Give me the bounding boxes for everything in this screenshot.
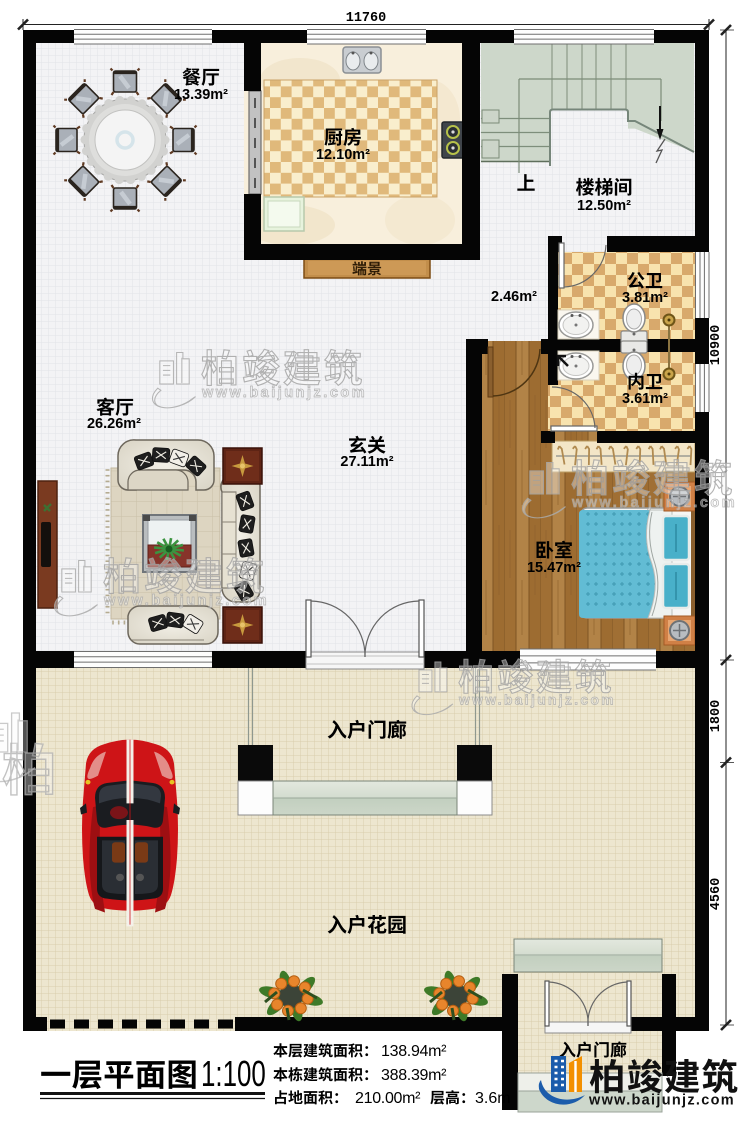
svg-text:4560: 4560 <box>709 878 724 910</box>
svg-text:26.26m²: 26.26m² <box>87 416 141 432</box>
svg-text:www.baijunjz.com: www.baijunjz.com <box>571 495 737 511</box>
svg-text:12.50m²: 12.50m² <box>577 198 631 214</box>
svg-text:10900: 10900 <box>709 325 724 366</box>
svg-text:1800: 1800 <box>709 700 724 732</box>
svg-text:138.94m²: 138.94m² <box>381 1043 447 1060</box>
svg-text:3.81m²: 3.81m² <box>622 290 668 306</box>
svg-text:3.61m²: 3.61m² <box>622 391 668 407</box>
svg-text:www.baijunjz.com: www.baijunjz.com <box>201 385 367 401</box>
svg-text:1:100: 1:100 <box>201 1054 266 1094</box>
svg-text:www.baijunjz.com: www.baijunjz.com <box>103 593 269 609</box>
svg-text:11760: 11760 <box>346 11 387 26</box>
svg-text:2.46m²: 2.46m² <box>491 289 537 305</box>
svg-text:210.00m²: 210.00m² <box>355 1090 421 1107</box>
svg-text:www.baijunjz.com: www.baijunjz.com <box>588 1093 735 1109</box>
svg-text:13.39m²: 13.39m² <box>174 87 228 103</box>
svg-text:15.47m²: 15.47m² <box>527 560 581 576</box>
svg-text:3.6m: 3.6m <box>475 1090 511 1107</box>
svg-text:388.39m²: 388.39m² <box>381 1067 447 1084</box>
svg-text:www.baijunjz.com: www.baijunjz.com <box>458 692 616 707</box>
svg-text:27.11m²: 27.11m² <box>340 454 393 470</box>
svg-text:12.10m²: 12.10m² <box>316 147 370 163</box>
